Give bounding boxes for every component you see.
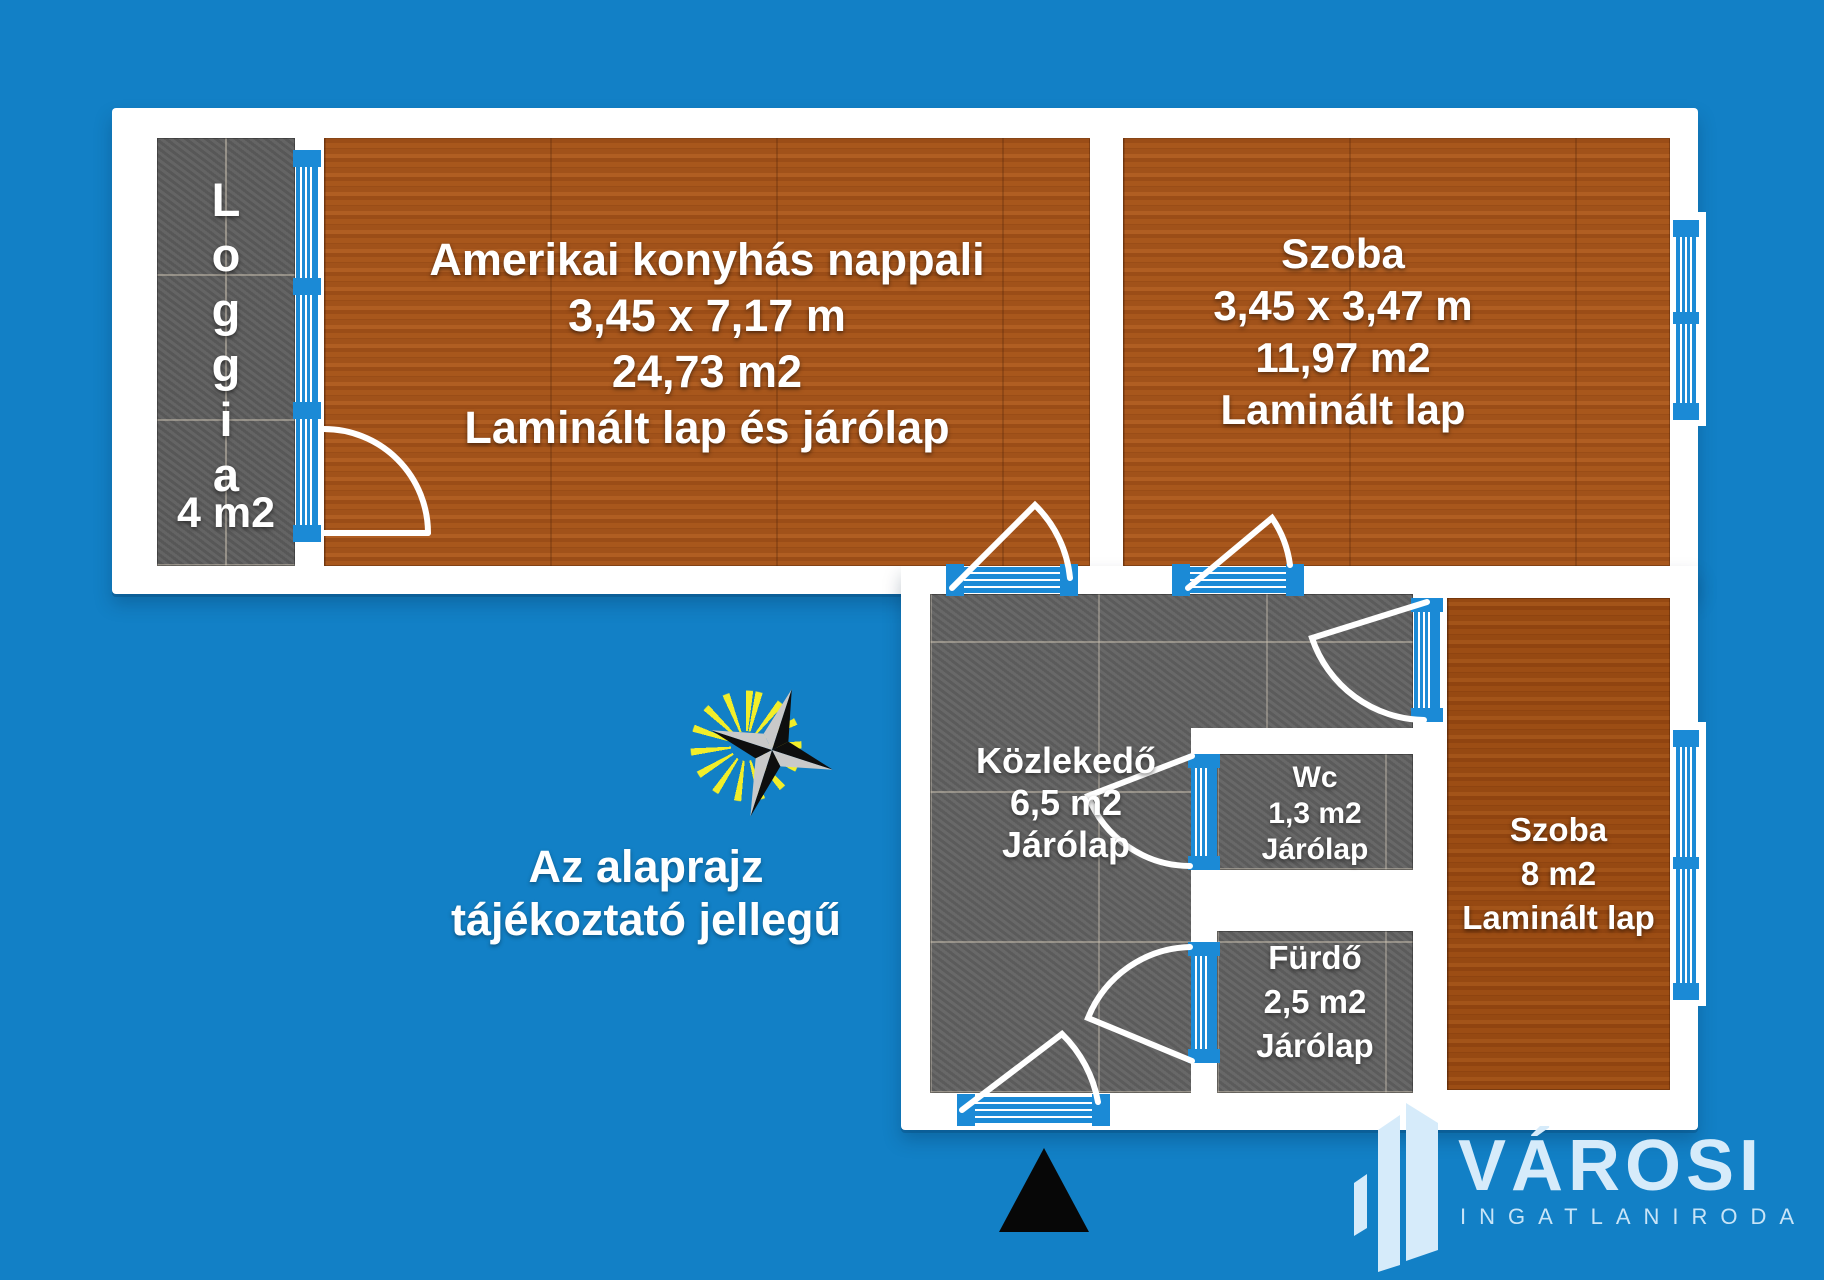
living-room-label: Amerikai konyhás nappali 3,45 x 7,17 m 2… — [324, 232, 1090, 456]
wc-label: Wc 1,3 m2 Járólap — [1217, 760, 1413, 868]
bathroom-door — [1191, 942, 1217, 1063]
loggia-label: Lo gg ia — [157, 172, 295, 490]
logo-subtitle-text: INGATLANIRODA — [1460, 1206, 1807, 1228]
living-hall-door — [946, 567, 1078, 593]
bedroom-top-hall-door — [1172, 567, 1304, 593]
floor-plan-canvas: Lo gg ia 4 m2 Amerikai konyhás nappali 3… — [0, 0, 1824, 1280]
bedroom-right-label: Szoba 8 m2 Laminált lap — [1447, 808, 1670, 940]
loggia-window — [296, 150, 318, 542]
disclaimer-text: Az alaprajz tájékoztató jellegű — [366, 840, 926, 946]
compass-star-icon — [672, 650, 872, 850]
bedroom-right-door — [1414, 598, 1440, 722]
bedroom-top-window — [1676, 220, 1696, 420]
logo-brand-text: VÁROSI — [1458, 1130, 1764, 1202]
bedroom-right-window — [1676, 730, 1696, 1000]
logo-buildings-icon — [1348, 1095, 1458, 1275]
bedroom-top-label: Szoba 3,45 x 3,47 m 11,97 m2 Laminált la… — [1123, 228, 1563, 436]
loggia-area-label: 4 m2 — [147, 492, 305, 535]
bathroom-label: Fürdő 2,5 m2 Járólap — [1217, 936, 1413, 1068]
hallway-label: Közlekedő 6,5 m2 Járólap — [930, 740, 1202, 866]
entrance-door — [957, 1097, 1110, 1123]
north-arrow-icon — [999, 1148, 1089, 1232]
